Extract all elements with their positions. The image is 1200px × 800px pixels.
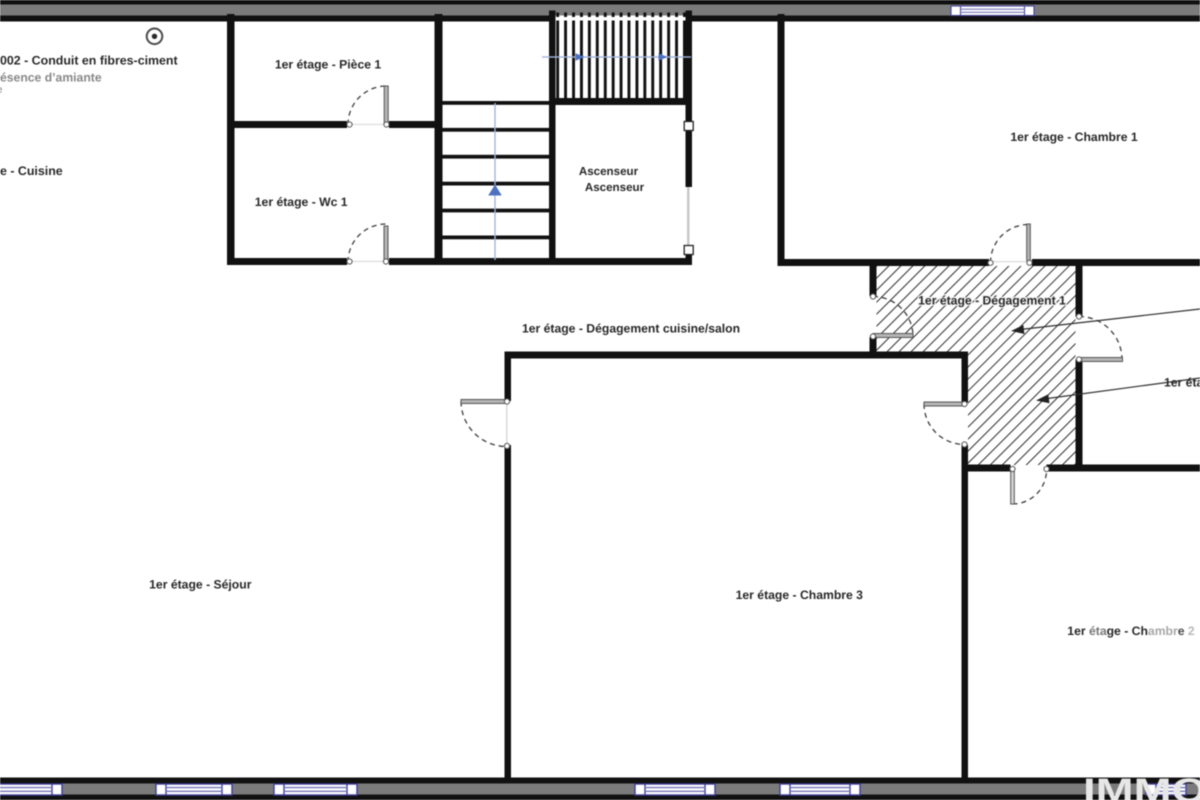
- svg-text:1er étage - Dégagement 1: 1er étage - Dégagement 1: [918, 293, 1066, 307]
- svg-text:1er étage - Wc 1: 1er étage - Wc 1: [255, 195, 348, 209]
- svg-text:IMMO: IMMO: [1083, 772, 1200, 800]
- svg-text:e - Cuisine: e - Cuisine: [0, 164, 63, 178]
- svg-text:1er étage - Dégagement cuisine: 1er étage - Dégagement cuisine/salon: [522, 321, 740, 335]
- svg-text:1er étage - Séjour: 1er étage - Séjour: [149, 578, 252, 592]
- svg-text:1er étage - Chambre 3: 1er étage - Chambre 3: [736, 588, 864, 602]
- svg-text:ésence d’amiante: ésence d’amiante: [0, 71, 102, 85]
- svg-text:Ascenseur: Ascenseur: [585, 181, 645, 194]
- svg-text:e: e: [0, 84, 2, 96]
- svg-text:002 - Conduit en fibres-ciment: 002 - Conduit en fibres-ciment: [0, 54, 178, 68]
- svg-text:1er étage - Pièce 1: 1er étage - Pièce 1: [275, 58, 382, 72]
- svg-text:1er étage - Chambre 2: 1er étage - Chambre 2: [1067, 624, 1195, 638]
- svg-text:Ascenseur: Ascenseur: [579, 165, 639, 178]
- svg-text:1er étage: 1er étage: [1164, 376, 1200, 390]
- svg-text:1er étage - Chambre 1: 1er étage - Chambre 1: [1010, 130, 1138, 144]
